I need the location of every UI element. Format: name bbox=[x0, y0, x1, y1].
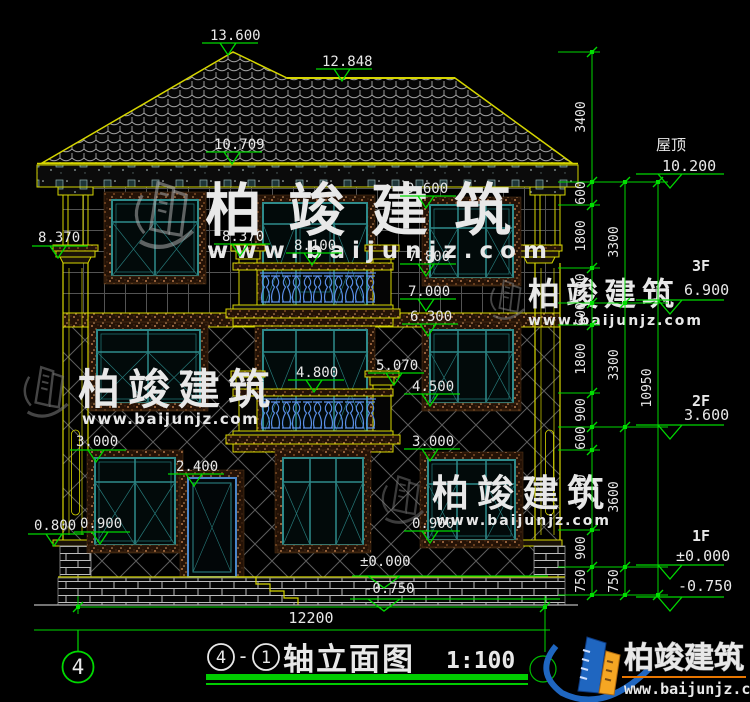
mark-eave: 10.709 bbox=[214, 137, 265, 153]
mark-floor3-slab: 7.000 bbox=[408, 284, 450, 300]
level-3f-label: 3F bbox=[692, 257, 710, 275]
level-1f-label: 1F bbox=[692, 527, 710, 545]
dim: 3400 bbox=[574, 101, 589, 132]
watermark-url-bottom: www.baijunjz.com bbox=[436, 513, 611, 529]
mark-post3-cap: 8.370 bbox=[222, 229, 264, 245]
window-1f-center bbox=[275, 450, 371, 553]
dim: 900 bbox=[574, 273, 589, 296]
mark-cap-left: 8.370 bbox=[38, 230, 80, 246]
logo-brand-name: 柏竣建筑 bbox=[624, 641, 744, 676]
level-3f-value: 6.900 bbox=[684, 281, 729, 299]
axis-bubble: 4 bbox=[63, 630, 94, 683]
dim: 750 bbox=[574, 569, 589, 592]
title-underline-thin bbox=[206, 683, 528, 685]
dim: 3300 bbox=[607, 226, 622, 257]
mark-sill1-right: 0.900 bbox=[412, 516, 454, 532]
mark-sill2: 4.500 bbox=[412, 379, 454, 395]
mark-w1-top-left: 3.000 bbox=[76, 434, 118, 450]
watermark-url-right: www.baijunjz.com bbox=[528, 313, 703, 329]
watermark-brand-left: 柏竣建筑 bbox=[78, 365, 278, 414]
mark-rail3: 7.800 bbox=[408, 249, 450, 265]
dim: 600 bbox=[574, 302, 589, 325]
level-roof-label: 屋顶 bbox=[656, 136, 686, 154]
dim: 2100 bbox=[574, 474, 589, 505]
mark-ridge2: 12.848 bbox=[322, 54, 373, 70]
title-axis-b: 1 bbox=[261, 648, 271, 668]
window-2f-right bbox=[422, 322, 521, 411]
level-base-value: -0.750 bbox=[678, 577, 732, 595]
dim: 3300 bbox=[607, 349, 622, 380]
mark-post2-cap: 5.070 bbox=[376, 358, 418, 374]
dim-total-width: 12200 bbox=[288, 609, 333, 627]
watermark-url-left: www.baijunjz.com bbox=[82, 410, 259, 428]
dim: 1800 bbox=[574, 220, 589, 251]
title-axis-a: 4 bbox=[216, 648, 226, 668]
mark-plinth: 0.800 bbox=[34, 518, 76, 534]
roof bbox=[42, 52, 572, 163]
mark-ridge: 13.600 bbox=[210, 28, 261, 44]
drawing-scale: 1:100 bbox=[446, 648, 515, 674]
watermark-brand-right: 柏竣建筑 bbox=[528, 275, 680, 313]
dim: 900 bbox=[574, 398, 589, 421]
level-1f-value: ±0.000 bbox=[676, 547, 730, 565]
title-underline-thick bbox=[206, 674, 528, 680]
entry-door bbox=[180, 470, 244, 578]
dim-total-height: 10950 bbox=[640, 368, 655, 407]
mark-below-ground: -0.750 bbox=[364, 581, 415, 597]
title-block: 4 - 1 轴立面图 1:100 bbox=[206, 642, 528, 685]
mark-rail2: 4.800 bbox=[296, 365, 338, 381]
mark-door1-top: 2.400 bbox=[176, 459, 218, 475]
mark-band2: 6.300 bbox=[410, 309, 452, 325]
mark-w1-top-right: 3.000 bbox=[412, 434, 454, 450]
dim: 750 bbox=[607, 569, 622, 592]
dim: 900 bbox=[574, 536, 589, 559]
drawing-title: 轴立面图 bbox=[283, 642, 415, 678]
dim: 1800 bbox=[574, 343, 589, 374]
brand-logo: 柏竣建筑 www.baijunjz.com bbox=[530, 596, 750, 700]
mark-ground: ±0.000 bbox=[360, 554, 411, 570]
level-2f-value: 3.600 bbox=[684, 406, 729, 424]
dim: 600 bbox=[574, 426, 589, 449]
dim: 3600 bbox=[607, 481, 622, 512]
mark-door3-top: 8.100 bbox=[294, 238, 336, 254]
mark-w3-top: 9.600 bbox=[406, 181, 448, 197]
plinth-base bbox=[58, 578, 565, 605]
logo-divider bbox=[622, 676, 746, 678]
title-separator: - bbox=[237, 644, 249, 668]
cad-canvas: 柏竣建筑 www.baijunjz.com 柏竣建筑 www.baijunjz.… bbox=[0, 0, 750, 702]
mark-sill1-left: 0.900 bbox=[80, 516, 122, 532]
logo-url: www.baijunjz.com bbox=[624, 680, 750, 698]
axis-bubble-number: 4 bbox=[72, 655, 85, 679]
dim: 600 bbox=[574, 181, 589, 204]
logo-axis-circle bbox=[530, 656, 556, 682]
level-roof-value: 10.200 bbox=[662, 157, 716, 175]
window-1f-left bbox=[87, 450, 183, 553]
